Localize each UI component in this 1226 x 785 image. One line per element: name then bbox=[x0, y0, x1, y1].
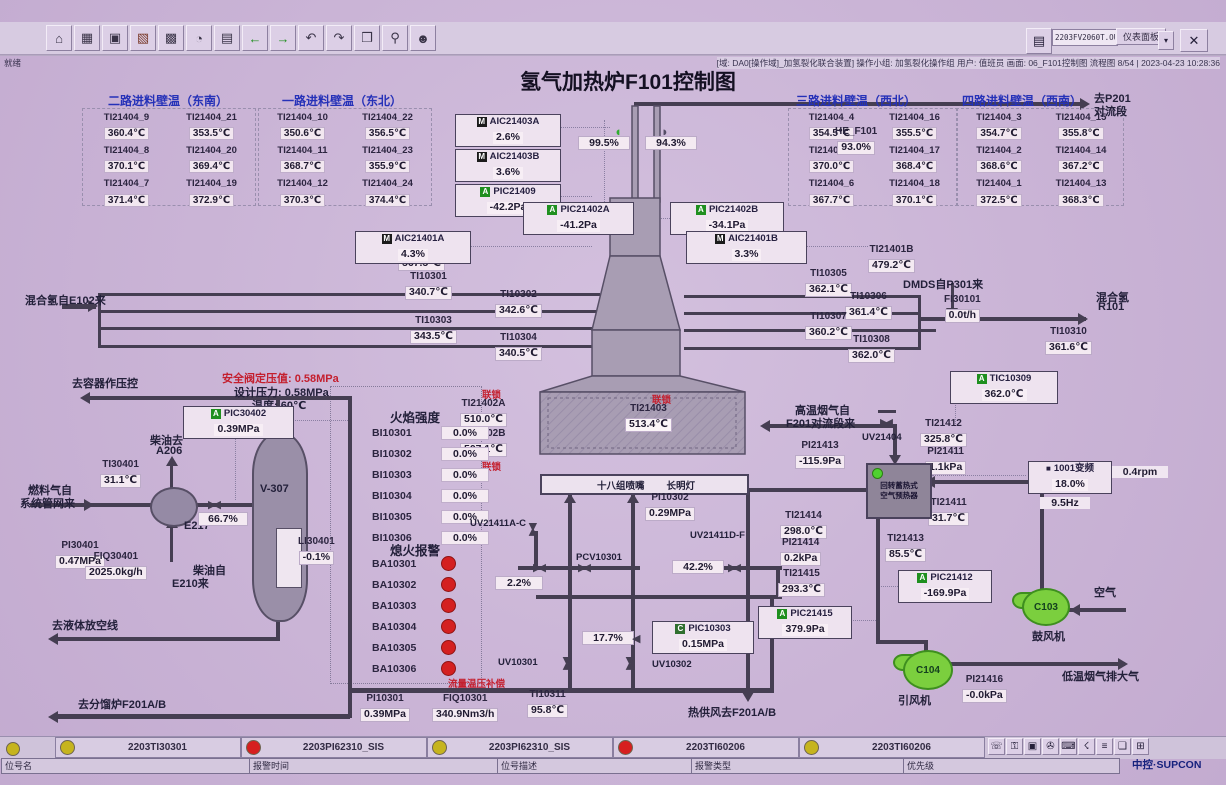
instrument-fi30101: FI301010.0t/h bbox=[944, 294, 981, 323]
tag-browse-icon[interactable]: ▤ bbox=[1026, 28, 1052, 54]
air-preheater[interactable]: 回转蓄热式 空气预热器 bbox=[866, 463, 932, 519]
uv21411ac-label: UV21411A-C bbox=[470, 518, 526, 529]
flame-row: BI103040.0% bbox=[372, 485, 489, 506]
alarm-priority-icon bbox=[618, 740, 633, 755]
pic10303-valve-icon[interactable]: ◀ bbox=[632, 634, 636, 645]
diesel-from-label-2: E210来 bbox=[172, 575, 209, 591]
mode-icon: C bbox=[675, 624, 685, 634]
uv10302-label: UV10302 bbox=[652, 659, 692, 670]
flameout-alarm-list: BA10301BA10302BA10303BA10304BA10305BA103… bbox=[372, 553, 456, 679]
flameout-row: BA10301 bbox=[372, 553, 456, 574]
fuel-valve-value: 66.7% bbox=[198, 512, 248, 526]
fuel-control-valve-icon[interactable]: ▶◀ bbox=[208, 500, 217, 511]
instrument-fiq10301: FIQ10301340.9Nm3/h bbox=[432, 693, 498, 722]
uv10301-label: UV10301 bbox=[498, 657, 538, 668]
instrument-ti10304: TI10304340.5℃ bbox=[495, 332, 542, 361]
status-ready: 就绪 bbox=[4, 57, 21, 69]
vfd-icon: ■ bbox=[1046, 465, 1051, 474]
wall-temp-item: TI21404_8370.1℃ bbox=[85, 146, 168, 174]
mode-icon: M bbox=[477, 152, 487, 162]
wall-temp-item: TI21404_22356.5℃ bbox=[346, 113, 429, 141]
air-label: 空气 bbox=[1094, 584, 1116, 600]
flameout-alarm-icon bbox=[441, 556, 456, 571]
wall-temp-item: TI21404_2368.6℃ bbox=[959, 146, 1039, 174]
toolbar-button-icon[interactable]: ⌂ bbox=[46, 25, 72, 51]
to-vessel-label: 去容器作压控 bbox=[72, 375, 138, 391]
close-icon[interactable]: ✕ bbox=[1180, 29, 1208, 52]
instrument-ti10306: TI10306361.4℃ bbox=[845, 291, 892, 320]
valve-17-7-value: 17.7% bbox=[582, 631, 634, 645]
instrument-pi10301: PI103010.39MPa bbox=[360, 693, 410, 722]
toolbar-button-icon[interactable]: ↷ bbox=[326, 25, 352, 51]
induced-fan-label: 引风机 bbox=[898, 692, 931, 708]
instrument-ti10302: TI10302342.6℃ bbox=[495, 289, 542, 318]
wall-temp-group-4-title: 四路进料壁温（西南） bbox=[962, 92, 1082, 109]
instrument-fiq30401: FIQ304012025.0kg/h bbox=[85, 551, 147, 580]
low-flue-out-label: 低温烟气排大气 bbox=[1062, 668, 1139, 684]
damper-b-value: 94.3% bbox=[645, 136, 697, 150]
instrument-pic30402[interactable]: APIC30402 0.39MPa bbox=[183, 406, 294, 439]
toolbar-button-icon[interactable]: ❒ bbox=[354, 25, 380, 51]
wall-temp-item: TI21404_11368.7℃ bbox=[261, 146, 344, 174]
flameout-alarm-icon bbox=[441, 619, 456, 634]
footer-tool-icon[interactable]: ⚿ bbox=[1006, 738, 1023, 755]
instrument-pic21402a[interactable]: APIC21402A -41.2Pa bbox=[523, 202, 634, 235]
alarm-priority-icon bbox=[246, 740, 261, 755]
wall-temp-item: TI21404_23355.9℃ bbox=[346, 146, 429, 174]
instrument-ti30401: TI3040131.1℃ bbox=[100, 459, 141, 488]
toolbar-button-icon[interactable]: ← bbox=[242, 25, 268, 51]
mode-icon: A bbox=[696, 205, 706, 215]
to-p201-label-2: 对流段 bbox=[1094, 103, 1127, 119]
v307-label: V-307 bbox=[260, 483, 289, 495]
instrument-aic21403a[interactable]: MAIC21403A 2.6% bbox=[455, 114, 561, 147]
uv10302-valve-icon[interactable]: ▶◀ bbox=[624, 657, 635, 666]
vfd-rpm-value: 0.4rpm bbox=[1112, 466, 1168, 478]
uv21411df-valve-icon[interactable]: ▶◀ bbox=[728, 563, 737, 574]
blower-c103[interactable]: C103 bbox=[1022, 588, 1070, 626]
instrument-pi21416: PI21416-0.0kPa bbox=[962, 674, 1007, 703]
wall-temp-group-1[interactable]: TI21404_10350.6℃TI21404_22356.5℃TI21404_… bbox=[258, 108, 432, 206]
wall-temp-item: TI21404_19372.9℃ bbox=[170, 179, 253, 207]
flame-strength-list: BI103010.0%BI103020.0%BI103030.0%BI10304… bbox=[372, 422, 489, 548]
mode-icon: M bbox=[382, 234, 392, 244]
mode-icon: A bbox=[977, 374, 987, 384]
alarm-priority-icon bbox=[60, 740, 75, 755]
flameout-row: BA10304 bbox=[372, 616, 456, 637]
wall-temp-group-2[interactable]: TI21404_9360.4℃TI21404_21353.5℃TI21404_8… bbox=[82, 108, 256, 206]
panel-dropdown-icon[interactable]: ▾ bbox=[1158, 31, 1174, 50]
instrument-ti21413: TI2141385.5℃ bbox=[885, 533, 926, 562]
instrument-ti21401b: TI21401B479.2℃ bbox=[868, 244, 915, 273]
footer-tool-icon[interactable]: ⌨ bbox=[1060, 738, 1077, 755]
alarm-field[interactable]: 报警类型 bbox=[691, 758, 906, 774]
alarm-field[interactable]: 优先级 bbox=[903, 758, 1120, 774]
tag-address-input[interactable] bbox=[1052, 29, 1118, 46]
flameout-alarm-icon bbox=[441, 598, 456, 613]
instrument-tic10309[interactable]: ATIC10309 362.0℃ bbox=[950, 371, 1058, 404]
alarm-field[interactable]: 位号描述 bbox=[497, 758, 694, 774]
flame-row: BI103020.0% bbox=[372, 443, 489, 464]
instrument-ti21403: TI21403513.4℃ bbox=[625, 403, 672, 432]
instrument-pic21415[interactable]: APIC21415 379.9Pa bbox=[758, 606, 852, 639]
instrument-ti21415: TI21415293.3℃ bbox=[778, 568, 825, 597]
alarm-field[interactable]: 位号名 bbox=[1, 758, 252, 774]
preheater-label: 回转蓄热式 bbox=[868, 481, 930, 491]
pcv10301-valve-icon[interactable]: ▶◀ bbox=[578, 563, 587, 574]
vfd-1001-box[interactable]: ■1001变频 18.0% bbox=[1028, 461, 1112, 494]
toolbar-button-icon[interactable]: ▩ bbox=[158, 25, 184, 51]
hot-air-to-f201-label: 热供风去F201A/B bbox=[688, 704, 776, 720]
flame-row: BI103010.0% bbox=[372, 422, 489, 443]
status-session-info: [域: DA0[操作域]_加氢裂化联合装置] 操作小组: 加氢裂化操作组 用户:… bbox=[717, 57, 1220, 69]
instrument-pi21414: PI214140.2kPa bbox=[780, 537, 821, 566]
burners-label: 十八组喷嘴 bbox=[597, 478, 645, 492]
diesel-to-label-2: A206 bbox=[156, 445, 182, 457]
damper-a-value: 99.5% bbox=[578, 136, 630, 150]
flameout-row: BA10306 bbox=[372, 658, 456, 679]
alarm-cell[interactable]: 2203TI60206 bbox=[799, 737, 985, 758]
hmi-screen: ⌂▦▣▧▩◔▤←→↶↷❒⚲☻ ▤ 仪表面板 ▾ ✕ 就绪 [域: DA0[操作域… bbox=[0, 0, 1226, 785]
uv10301-valve-icon[interactable]: ▶◀ bbox=[561, 657, 572, 666]
pilot-label: 长明灯 bbox=[667, 478, 696, 492]
mode-icon: M bbox=[477, 117, 487, 127]
flow-compensation-label: 流量温压补偿 bbox=[448, 676, 505, 690]
toolbar-button-icon[interactable]: ▤ bbox=[214, 25, 240, 51]
footer-tool-icon[interactable]: ▣ bbox=[1024, 738, 1041, 755]
valve-42-2-value: 42.2% bbox=[672, 560, 724, 574]
footer-tool-icon[interactable]: ⊞ bbox=[1132, 738, 1149, 755]
footer-tool-icon[interactable]: ✇ bbox=[1042, 738, 1059, 755]
blower-label: 鼓风机 bbox=[1032, 628, 1065, 644]
alarm-cell[interactable]: 2203TI60206 bbox=[613, 737, 799, 758]
instrument-ti10307: TI10307360.2℃ bbox=[805, 311, 852, 340]
alarm-priority-icon bbox=[804, 740, 819, 755]
uv21404-label: UV21404 bbox=[862, 432, 902, 443]
to-liquid-vent-label: 去液体放空线 bbox=[52, 617, 118, 633]
hot-flue-label-2: F201对流段来 bbox=[786, 415, 855, 431]
dmds-label: DMDS自P301来 bbox=[903, 276, 983, 292]
mode-icon: A bbox=[480, 187, 490, 197]
c104-label: C104 bbox=[916, 665, 940, 676]
mode-icon: A bbox=[917, 573, 927, 583]
vfd-hz-value: 9.5Hz bbox=[1040, 497, 1090, 509]
instrument-ti10308: TI10308362.0℃ bbox=[848, 334, 895, 363]
toolbar-button-icon[interactable]: ▣ bbox=[102, 25, 128, 51]
mix-h2-out-label-2: R101 bbox=[1098, 301, 1124, 313]
instrument-ti21411: TI2141131.7℃ bbox=[928, 497, 969, 526]
to-f201ab-label: 去分馏炉F201A/B bbox=[78, 696, 166, 712]
instrument-ti21412: TI21412325.8℃ bbox=[920, 418, 967, 447]
alarm-cell[interactable]: 2203PI62310_SIS bbox=[427, 737, 613, 758]
page-title: 氢气加热炉F101控制图 bbox=[520, 66, 736, 96]
wall-temp-item: TI21404_12370.3℃ bbox=[261, 179, 344, 207]
preheater-run-status-icon bbox=[872, 468, 883, 479]
uv21404-valve-icon[interactable]: ▶◀ bbox=[880, 418, 889, 429]
toolbar-button-icon[interactable]: ◔ bbox=[186, 25, 212, 51]
wall-temp-item: TI21404_3354.7℃ bbox=[959, 113, 1039, 141]
toolbar-button-icon[interactable]: ☻ bbox=[410, 25, 436, 51]
alarm-field[interactable]: 报警时间 bbox=[249, 758, 500, 774]
wall-temp-item: TI21404_18370.1℃ bbox=[874, 179, 955, 207]
instrument-li30401: LI30401-0.1% bbox=[298, 536, 335, 565]
wall-temp-item: TI21404_14367.2℃ bbox=[1041, 146, 1121, 174]
valve-2-2-value: 2.2% bbox=[495, 576, 543, 590]
wall-temp-item: TI21404_7371.4℃ bbox=[85, 179, 168, 207]
flameout-row: BA10302 bbox=[372, 574, 456, 595]
toolbar-button-icon[interactable]: ▧ bbox=[130, 25, 156, 51]
footer-tool-icon[interactable]: ≡ bbox=[1096, 738, 1113, 755]
wall-temp-item: TI21404_6367.7℃ bbox=[791, 179, 872, 207]
toolbar-button-icon[interactable]: → bbox=[270, 25, 296, 51]
wall-temp-group-4[interactable]: TI21404_3354.7℃TI21404_15355.8℃TI21404_2… bbox=[956, 108, 1124, 206]
wall-temp-item: TI21404_13368.3℃ bbox=[1041, 179, 1121, 207]
control-valve-icon[interactable]: ▶◀ bbox=[533, 563, 542, 574]
wall-temp-item: TI21404_16355.5℃ bbox=[874, 113, 955, 141]
preheater-label-2: 空气预热器 bbox=[868, 491, 930, 501]
wall-temp-group-3[interactable]: TI21404_4354.5℃TI21404_16355.5℃TI21404_5… bbox=[788, 108, 958, 206]
mode-icon: A bbox=[211, 409, 221, 419]
wall-temp-item: TI21404_20369.4℃ bbox=[170, 146, 253, 174]
induced-fan-c104[interactable]: C104 bbox=[903, 650, 953, 690]
wall-temp-group-3-title: 三路进料壁温（西北） bbox=[796, 92, 916, 109]
instrument-he-f101: HE_F10193.0% bbox=[835, 126, 877, 155]
toolbar-button-icon[interactable]: ↶ bbox=[298, 25, 324, 51]
instrument-aic21401b[interactable]: MAIC21401B 3.3% bbox=[686, 231, 807, 264]
wall-temp-item: TI21404_1372.5℃ bbox=[959, 179, 1039, 207]
alarm-field-row: 位号名 报警时间 位号描述 报警类型 优先级 bbox=[0, 758, 1226, 774]
flameout-row: BA10303 bbox=[372, 595, 456, 616]
instrument-ti10303: TI10303343.5℃ bbox=[410, 315, 457, 344]
instrument-aic21403b[interactable]: MAIC21403B 3.6% bbox=[455, 149, 561, 182]
footer-tool-icon[interactable]: ❏ bbox=[1114, 738, 1131, 755]
instrument-ti10311: TI1031195.8℃ bbox=[527, 689, 568, 718]
flame-row: BI103030.0% bbox=[372, 464, 489, 485]
footer-tool-icon[interactable]: ☏ bbox=[988, 738, 1005, 755]
uv21411ac-valve-icon[interactable]: ▶◀ bbox=[527, 523, 538, 532]
wall-temp-item: TI21404_17368.4℃ bbox=[874, 146, 955, 174]
flameout-alarm-icon bbox=[441, 577, 456, 592]
alarm-cell[interactable]: 2203PI62310_SIS bbox=[241, 737, 427, 758]
mix-h2-in-label: 混合氢自E102来 bbox=[25, 292, 106, 308]
alarm-priority-icon bbox=[432, 740, 447, 755]
instrument-ti10310: TI10310361.6℃ bbox=[1045, 326, 1092, 355]
instrument-pi10302: PI103020.29MPa bbox=[645, 492, 695, 521]
instrument-ti10301: TI10301340.7℃ bbox=[405, 271, 452, 300]
uv21411df-label: UV21411D-F bbox=[690, 530, 745, 541]
wall-temp-item: TI21404_24374.4℃ bbox=[346, 179, 429, 207]
instrument-pic21412[interactable]: APIC21412 -169.9Pa bbox=[898, 570, 992, 603]
wall-temp-group-1-title: 一路进料壁温（东北） bbox=[282, 92, 402, 109]
mode-icon: A bbox=[777, 609, 787, 619]
c103-label: C103 bbox=[1034, 602, 1058, 613]
toolbar: ⌂▦▣▧▩◔▤←→↶↷❒⚲☻ ▤ 仪表面板 ▾ ✕ bbox=[0, 22, 1226, 55]
instrument-ti21414: TI21414298.0℃ bbox=[780, 510, 827, 539]
toolbar-button-icon[interactable]: ⚲ bbox=[382, 25, 408, 51]
vessel-v307[interactable] bbox=[252, 432, 308, 622]
flameout-row: BA10305 bbox=[372, 637, 456, 658]
mode-icon: A bbox=[547, 205, 557, 215]
mode-icon: M bbox=[715, 234, 725, 244]
instrument-aic21401a[interactable]: MAIC21401A 4.3% bbox=[355, 231, 471, 264]
fuel-gas-label-2: 系统管网来 bbox=[20, 495, 75, 511]
wall-temp-item: TI21404_10350.6℃ bbox=[261, 113, 344, 141]
wall-temp-item: TI21404_9360.4℃ bbox=[85, 113, 168, 141]
flameout-alarm-icon bbox=[441, 640, 456, 655]
wall-temp-item: TI21404_21353.5℃ bbox=[170, 113, 253, 141]
supcon-logo: 中控·SUPCON bbox=[1132, 757, 1201, 772]
toolbar-button-icon[interactable]: ▦ bbox=[74, 25, 100, 51]
alarm-cell[interactable]: 2203TI30301 bbox=[55, 737, 241, 758]
instrument-pi21413: PI21413-115.9Pa bbox=[795, 440, 845, 469]
instrument-pic10303[interactable]: CPIC10303 0.15MPa bbox=[652, 621, 754, 654]
footer-tool-icon[interactable]: ☇ bbox=[1078, 738, 1095, 755]
flameout-alarm-icon bbox=[441, 661, 456, 676]
wall-temp-group-2-title: 二路进料壁温（东南） bbox=[108, 92, 228, 109]
